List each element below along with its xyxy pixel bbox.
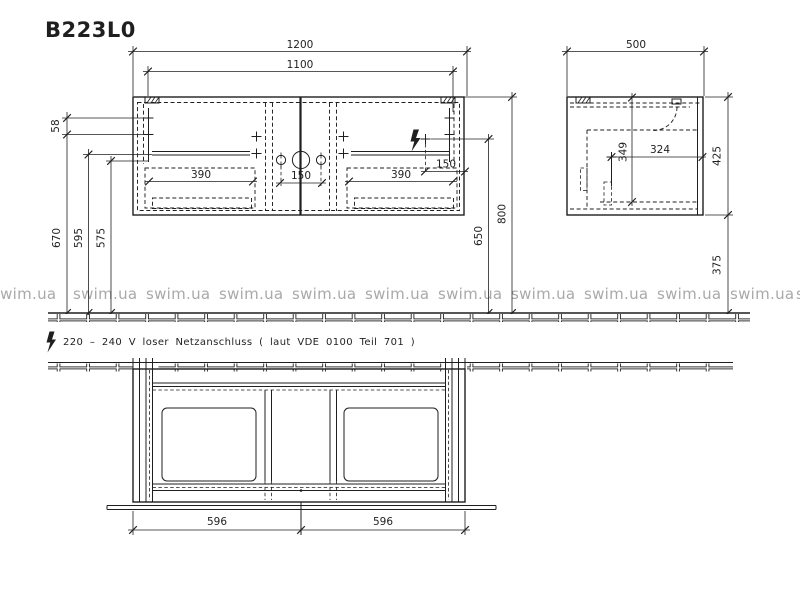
side-dimension-ticks <box>563 48 732 317</box>
watermark: swim.ua <box>73 285 137 303</box>
front-cabinet-outline <box>133 97 464 215</box>
watermark: swim.ua <box>584 285 648 303</box>
dim-floor-clearance: 375 <box>712 255 724 275</box>
watermark: swim.ua <box>730 285 794 303</box>
dim-height-670: 670 <box>51 228 63 248</box>
watermark-row: swim.ua swim.ua swim.ua swim.ua swim.ua … <box>0 285 800 303</box>
basin-contour-arc <box>654 107 678 131</box>
note-text: 220 – 240 V loser Netzanschluss ( laut V… <box>63 337 415 348</box>
dim-plan-drawer-left: 596 <box>207 516 227 528</box>
dim-outlet-side-offset: 150 <box>436 159 456 171</box>
floor-band <box>48 313 750 322</box>
drawer-basin-left <box>162 408 256 481</box>
model-number: B223L0 <box>45 18 136 42</box>
dim-faucet-spacing: 150 <box>291 170 311 182</box>
front-dimension-lines <box>62 46 517 315</box>
front-view: 1200 1100 58 670 595 575 390 150 390 150… <box>50 39 517 317</box>
wall-band <box>48 363 733 372</box>
power-note: 220 – 240 V loser Netzanschluss ( laut V… <box>47 332 416 353</box>
dim-height-595: 595 <box>73 228 85 248</box>
side-dimension-lines <box>562 46 733 315</box>
dim-drawer-width-left: 390 <box>191 169 211 181</box>
watermark: swim.ua <box>438 285 502 303</box>
dim-inner-depth: 324 <box>650 144 670 156</box>
dim-cabinet-height: 425 <box>712 146 724 166</box>
dim-inner-height: 349 <box>618 142 630 162</box>
side-view: 500 324 349 425 375 <box>562 39 733 317</box>
watermark: swim.ua <box>219 285 283 303</box>
dim-height-575: 575 <box>96 228 108 248</box>
note-bolt-icon <box>47 332 57 353</box>
plan-cabinet-outline <box>133 358 465 502</box>
dim-drawer-width-right: 390 <box>391 169 411 181</box>
plan-view: 596 596 <box>107 358 496 535</box>
dim-inner-width: 1100 <box>287 59 314 71</box>
dim-plan-drawer-right: 596 <box>373 516 393 528</box>
drawer-basin-right <box>344 408 438 481</box>
side-cabinet-outline <box>567 97 703 215</box>
watermark: swim.ua <box>511 285 575 303</box>
dim-total-height: 800 <box>497 204 509 224</box>
watermark: swim.ua <box>365 285 429 303</box>
technical-drawing: B223L0 swim.ua swim.ua swim.ua swim.ua s… <box>0 0 800 591</box>
watermark: swim.ua <box>146 285 210 303</box>
watermark: swim.ua <box>0 285 56 303</box>
power-bolt-icon <box>411 130 421 152</box>
technical-drawing-page: B223L0 swim.ua swim.ua swim.ua swim.ua s… <box>0 0 800 591</box>
watermark: swim.ua <box>292 285 356 303</box>
front-dimension-ticks <box>63 48 516 317</box>
watermark: swim.ua <box>657 285 721 303</box>
plan-dimension-lines <box>128 503 470 536</box>
dim-top-bracket-offset: 58 <box>50 119 62 132</box>
dim-outlet-height: 650 <box>473 226 485 246</box>
dim-depth: 500 <box>626 39 646 51</box>
dim-overall-width: 1200 <box>287 39 314 51</box>
watermark: swim.ua <box>796 285 800 303</box>
